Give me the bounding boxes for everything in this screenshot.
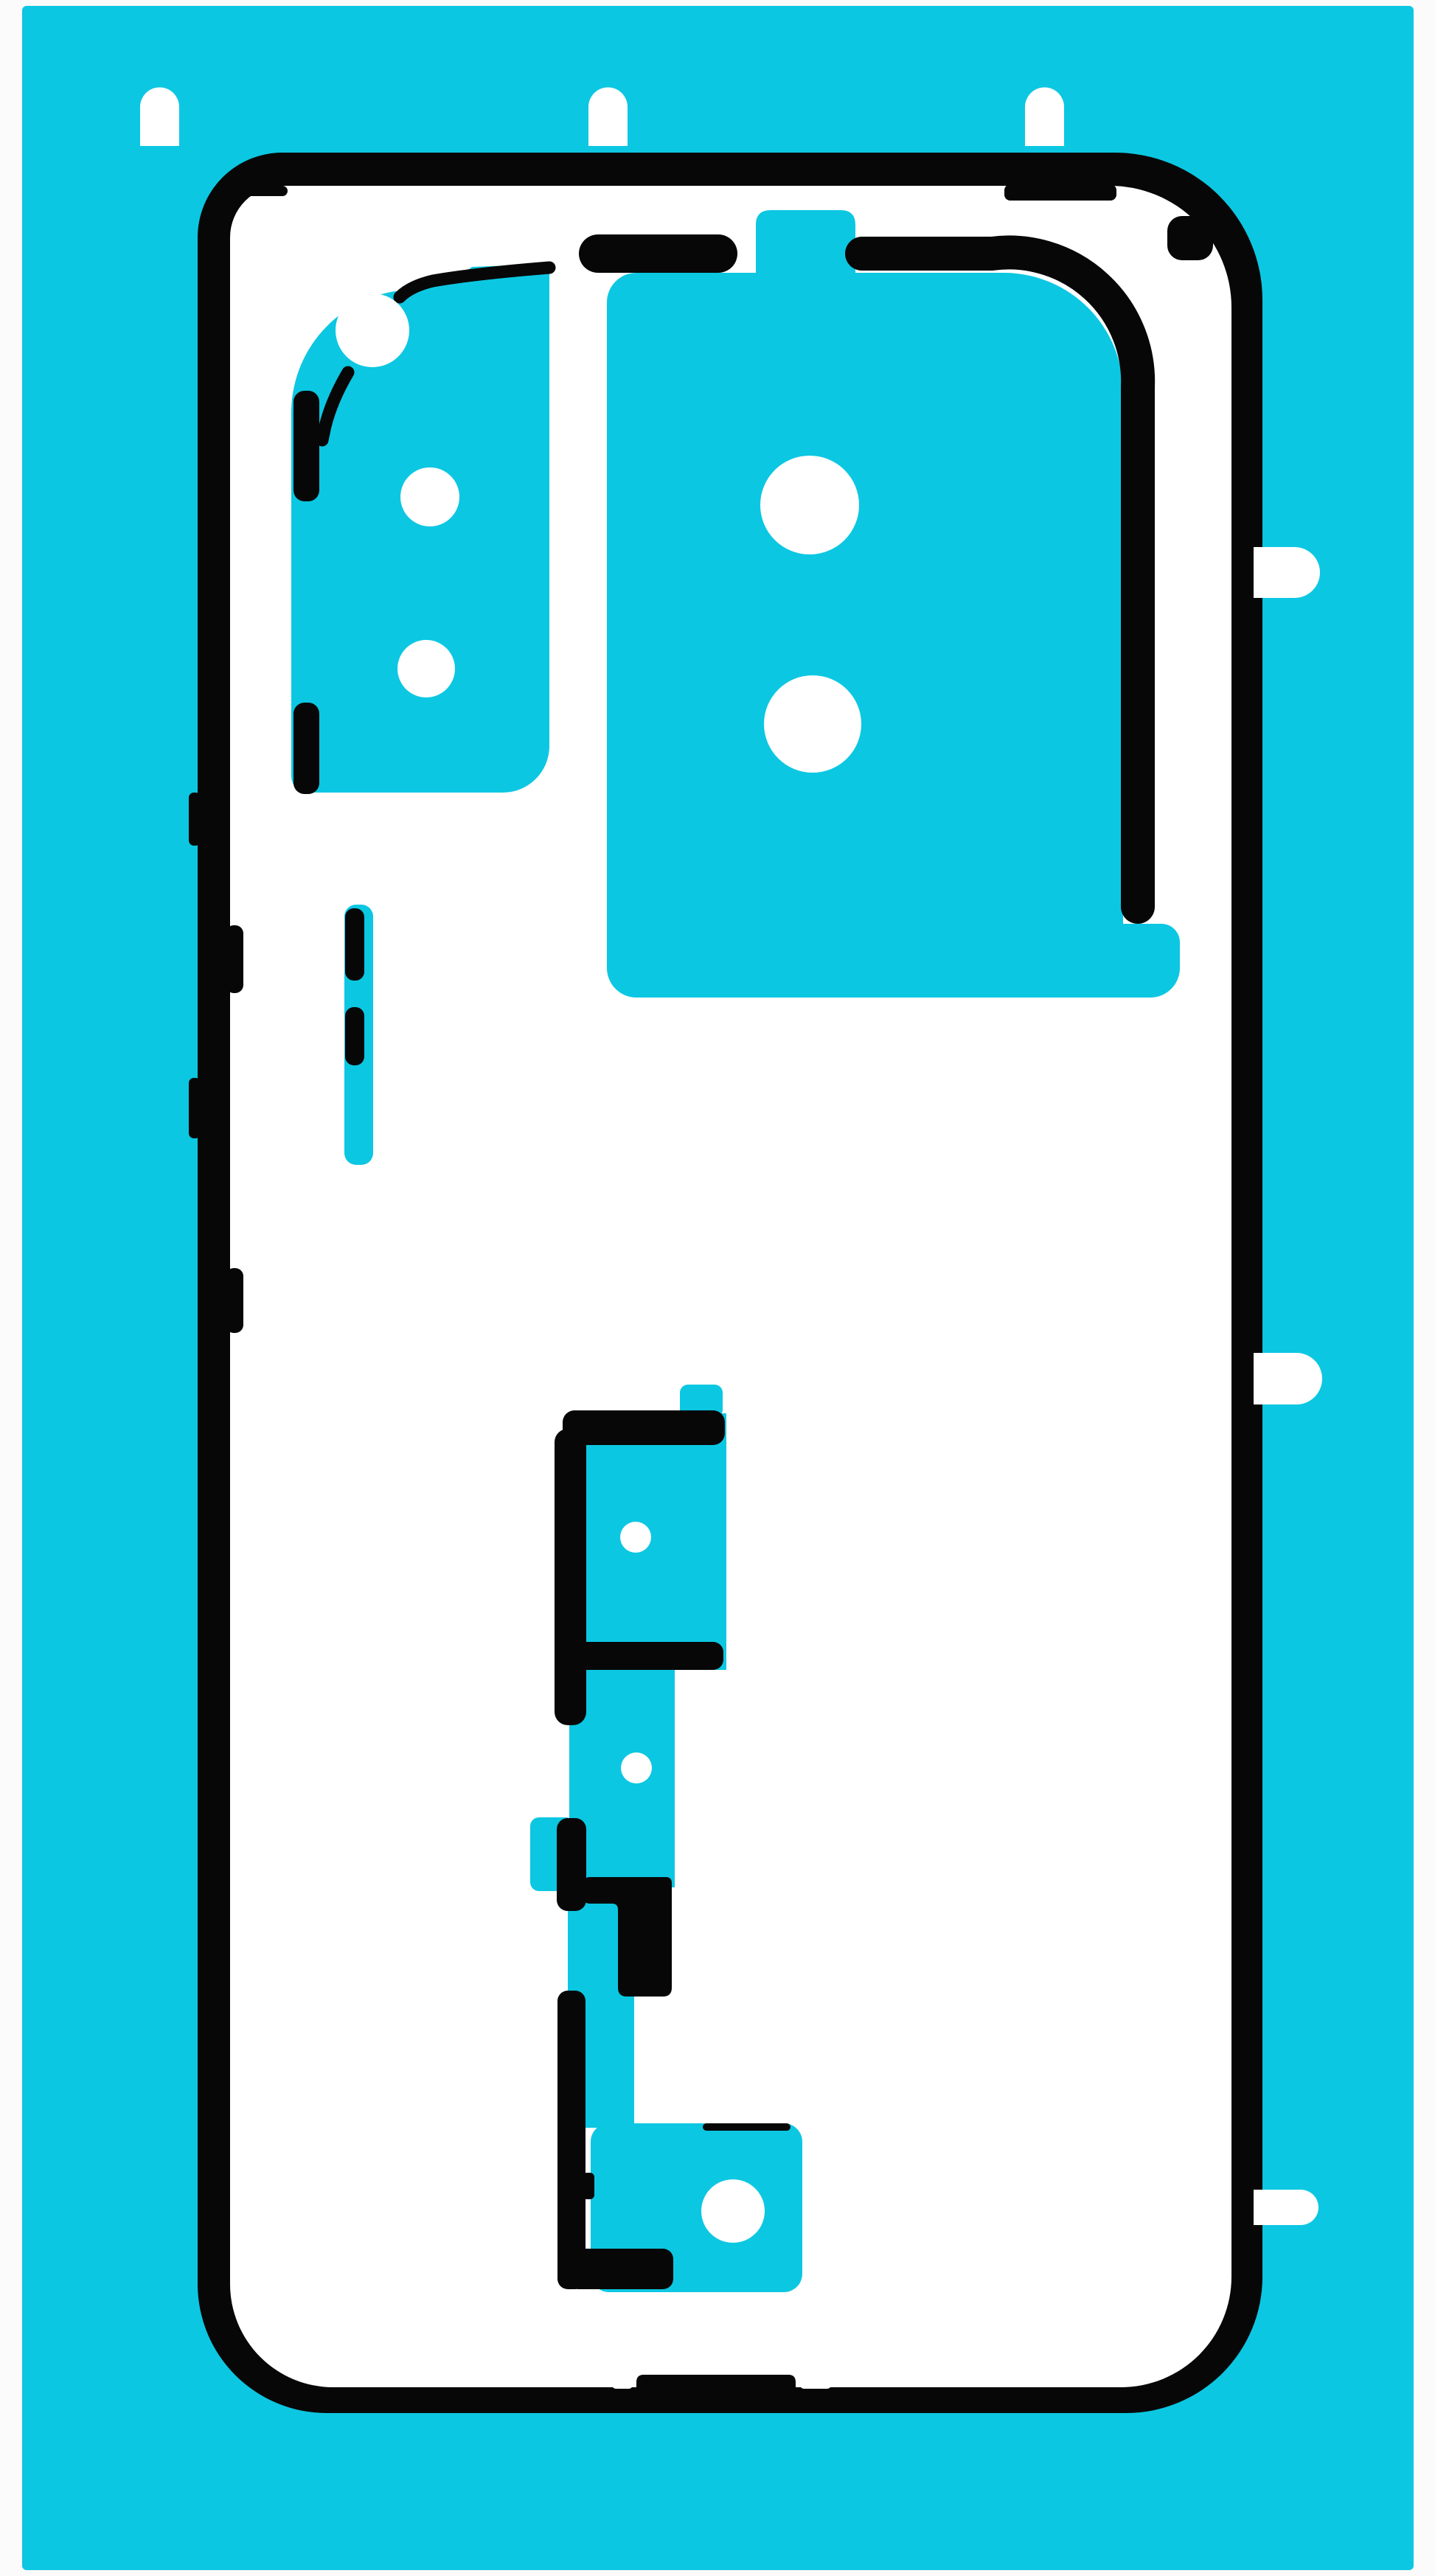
centre-left-step: [583, 2173, 594, 2199]
outline-bottom-bump: [636, 2375, 796, 2389]
left-camera-bite: [336, 293, 409, 367]
centre-left-border-3: [557, 1991, 586, 2289]
centre-left-border-1: [555, 1429, 586, 1725]
centre-block-top-edge: [703, 2123, 791, 2131]
centre-dot-3: [701, 2179, 765, 2243]
outline-left-bulge-2: [189, 1078, 201, 1138]
product-photo: [0, 0, 1435, 2576]
camera-glass-hole-2: [764, 675, 861, 773]
right-pull-tab-3: [1254, 2190, 1318, 2225]
left-camera-hole-2: [397, 640, 455, 697]
bottom-notch-right: [800, 2381, 831, 2389]
centre-dot-1: [620, 1522, 651, 1553]
right-pull-tab-2: [1254, 1353, 1322, 1404]
centre-cross-bar: [559, 1642, 723, 1670]
centre-left-border-2: [557, 1818, 586, 1911]
top-pull-tab-2: [588, 88, 628, 146]
adhesive-sheet-photo: [0, 0, 1435, 2576]
outline-corner-nub: [1167, 216, 1213, 260]
centre-top-band: [563, 1410, 725, 1445]
outline-left-bulge-1: [189, 793, 201, 846]
outline-inner-step-top-right: [1004, 184, 1116, 201]
bottom-notch-left: [612, 2381, 633, 2389]
volume-strip-dash-1: [345, 908, 364, 981]
outline-left-bump-1: [226, 925, 243, 993]
outline-left-bump-2: [226, 1268, 243, 1333]
left-camera-edge-dash-1: [293, 391, 319, 501]
camera-glass-cutout: [607, 210, 1180, 998]
top-pull-tab-1: [140, 88, 179, 146]
camera-glass-top-bar: [579, 234, 737, 273]
volume-strip-dash-2: [345, 1007, 364, 1065]
top-pull-tab-3: [1025, 88, 1064, 146]
left-camera-hole-1: [400, 467, 459, 526]
centre-dot-2: [621, 1752, 652, 1783]
left-camera-edge-dash-2: [293, 703, 319, 794]
outline-corner-wiggle: [243, 186, 288, 196]
left-camera-cutout: [291, 264, 549, 793]
right-pull-tab-1: [1254, 547, 1320, 598]
camera-glass-hole-1: [760, 456, 859, 554]
centre-bottom-corner: [568, 2249, 673, 2289]
